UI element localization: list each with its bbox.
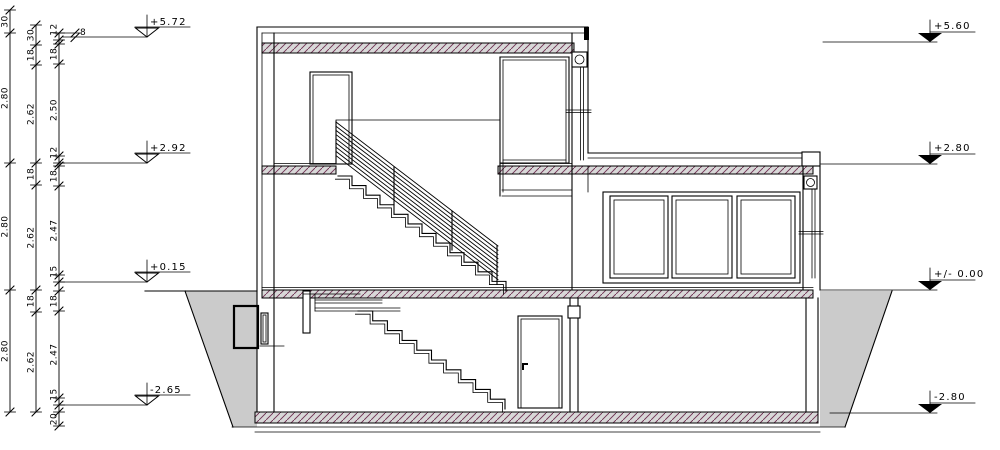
level-label: +/- 0.00	[934, 269, 984, 280]
dim-label: 18	[50, 48, 60, 60]
level-label: -2.80	[934, 392, 966, 403]
dim-label: 15	[50, 265, 60, 277]
roof-slab	[262, 43, 574, 53]
dim-label: 2.62	[27, 226, 37, 248]
door-handle-stem	[522, 363, 524, 370]
dim-label: 15	[50, 388, 60, 400]
dim-label: 30	[1, 15, 11, 27]
cad-section-drawing: 302.802.802.8030182.62182.62182.6212182.…	[0, 0, 1000, 450]
level-label: -2.65	[150, 385, 182, 396]
dim-label: 2.50	[50, 99, 60, 121]
dim-label: 2.47	[50, 343, 60, 365]
basement-wall-detail	[568, 306, 580, 318]
dim-label: 12	[50, 23, 60, 35]
level-label: +2.80	[934, 143, 971, 154]
upper-floor-slab-left	[262, 166, 336, 174]
dim-label: 18	[27, 49, 37, 61]
dim-label: 2.47	[50, 219, 60, 241]
dim-label: 12	[50, 146, 60, 158]
stair-stub-wall	[303, 291, 310, 333]
dim-label: 18	[50, 295, 60, 307]
dim-label: 2.80	[1, 340, 11, 362]
level-label: +0.15	[150, 262, 187, 273]
dim-label: 2.80	[1, 87, 11, 109]
ext-drain-box	[804, 176, 817, 189]
ext-parapet	[802, 152, 820, 166]
dim-label: 2.62	[27, 103, 37, 125]
level-label: +5.60	[934, 21, 971, 32]
level-label: +2.92	[150, 143, 187, 154]
dim-label: 18	[27, 295, 37, 307]
dim-label: 2.80	[1, 215, 11, 237]
upper-floor-slab-right	[498, 166, 813, 174]
dim-label: 18	[50, 170, 60, 182]
dim-label: 20	[50, 413, 60, 425]
roof-drain-box	[572, 52, 587, 67]
level-label: +5.72	[150, 17, 187, 28]
dim-label-8: 8	[80, 28, 86, 38]
dim-label: 30	[27, 29, 37, 41]
basement-floor-slab	[255, 412, 818, 423]
dim-label: 18	[27, 168, 37, 180]
dim-label: 2.62	[27, 351, 37, 373]
